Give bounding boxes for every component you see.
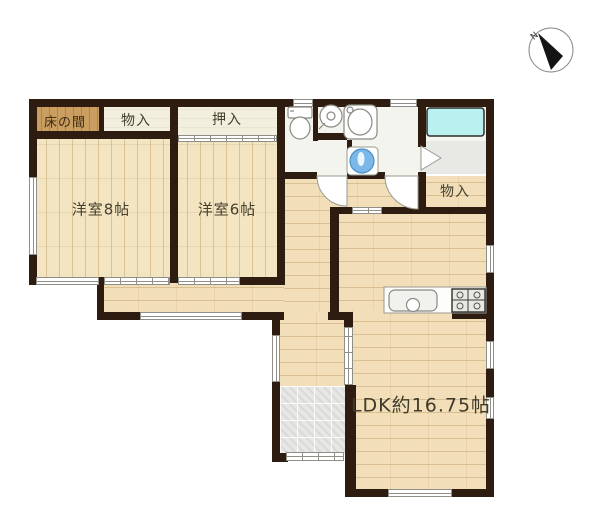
compass-north-label: N xyxy=(529,31,541,43)
sliding-door-5 xyxy=(286,452,344,461)
floor-hall-mid xyxy=(281,207,333,315)
sliding-door-0 xyxy=(104,277,170,285)
wall-segment-13 xyxy=(277,99,285,285)
floor-plan: N 床の間 物入 押入 洋室8帖 洋室6帖 物入 LDK約16.75帖 xyxy=(0,0,600,521)
wall-segment-21 xyxy=(418,99,426,147)
wall-segment-25 xyxy=(330,207,339,313)
wall-segment-28 xyxy=(452,312,494,319)
label-closet-right: 物入 xyxy=(440,181,470,201)
sliding-door-1 xyxy=(178,277,240,285)
sliding-door-3 xyxy=(344,327,353,385)
floor-bathroom xyxy=(420,103,488,143)
window-8 xyxy=(390,99,417,107)
wall-segment-9 xyxy=(486,99,494,497)
wall-segment-22 xyxy=(418,172,426,212)
label-ldk: LDK約16.75帖 xyxy=(351,391,491,418)
compass-icon: N xyxy=(529,28,573,72)
wall-segment-12 xyxy=(170,106,178,283)
label-tokonoma: 床の間 xyxy=(44,112,86,131)
window-0 xyxy=(29,177,37,255)
window-3 xyxy=(388,489,452,497)
wall-segment-17 xyxy=(347,140,352,152)
floor-hall-upper xyxy=(281,176,422,210)
floor-dining-kitchen xyxy=(335,212,487,314)
floor-entrance-genkan xyxy=(280,386,350,455)
wall-segment-11 xyxy=(99,106,104,134)
window-5 xyxy=(486,341,494,369)
window-2 xyxy=(272,335,280,382)
label-western-room-8: 洋室8帖 xyxy=(72,199,131,220)
sliding-door-4 xyxy=(352,207,382,214)
wall-segment-24 xyxy=(382,207,494,214)
floor-bathroom-tile xyxy=(420,141,488,174)
wall-segment-19 xyxy=(347,172,385,179)
floor-corridor xyxy=(100,281,284,314)
window-1 xyxy=(140,312,242,320)
label-oshiire: 押入 xyxy=(212,109,242,129)
window-4 xyxy=(486,245,494,273)
wall-segment-16 xyxy=(318,133,347,140)
window-9 xyxy=(36,277,99,285)
floor-hall-lower xyxy=(278,312,348,389)
label-closet-top-left: 物入 xyxy=(121,110,151,130)
window-7 xyxy=(293,99,313,107)
label-western-room-6: 洋室6帖 xyxy=(198,199,257,220)
floor-toilet-room xyxy=(281,103,317,176)
wall-segment-18 xyxy=(283,172,317,179)
wall-segment-27 xyxy=(344,312,353,328)
wall-segment-14 xyxy=(240,277,285,285)
sliding-door-2 xyxy=(178,135,277,142)
